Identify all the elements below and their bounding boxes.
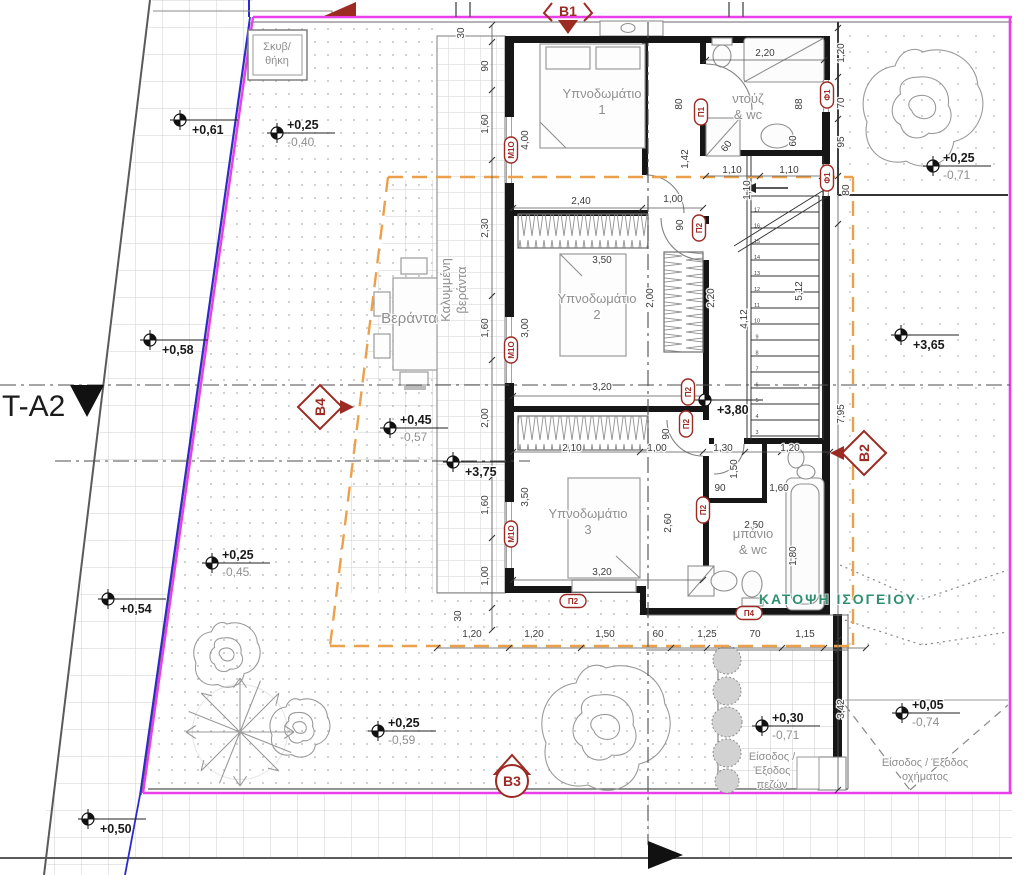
plan-title: ΚΑΤΟΨΗ ΙΣΟΓΕΙΟΥ: [759, 591, 917, 607]
dimension-label: 1,20: [780, 443, 800, 454]
north-triangle-icon: [324, 2, 356, 16]
opening-label: Φ1: [823, 172, 832, 184]
dimension-label: 1,60: [480, 318, 491, 338]
opening-label: Π1: [697, 106, 706, 117]
section-line-label: T-A2: [2, 390, 65, 423]
opening-label: Π2: [682, 418, 691, 429]
dimension-label: 88: [794, 98, 805, 110]
covered-veranda: Καλυμμένηβεράντα: [438, 258, 469, 322]
opening-label: Μ1Ο: [507, 141, 516, 158]
dimension-label: 90: [675, 219, 686, 231]
opening-marker-Π2: Π2: [693, 215, 706, 241]
marker-label: Β3: [503, 773, 521, 789]
stair-step-number: 6: [755, 382, 758, 388]
elevation-plus: +0,61: [192, 123, 224, 137]
dimension-label: 2,40: [571, 196, 591, 207]
stair-step-number: 11: [754, 303, 760, 309]
dimension-label: 3,20: [592, 567, 612, 578]
bedroom-3-text: Υπνοδωμάτιο: [548, 506, 627, 521]
opening-marker-Π2: Π2: [560, 595, 586, 608]
marker-label: Β4: [312, 398, 328, 416]
opening-label: Π4: [744, 609, 755, 618]
dimension-label: 30: [456, 27, 467, 39]
dimension-label: 3,00: [520, 318, 531, 338]
vehicle-entrance-text: Είσοδος / Έξοδος: [882, 757, 968, 769]
elevation-plus: +0,25: [287, 118, 319, 132]
drawing-canvas: 34567891011121314151617 30901,602,301,60…: [0, 0, 1024, 875]
dimension-label: 3,42: [836, 699, 847, 719]
dimension-label: 60: [652, 629, 664, 640]
opening-label: Π2: [568, 597, 579, 606]
covered-veranda-text: βεράντα: [454, 266, 469, 314]
bath-wc-text: μπάνιο: [733, 526, 773, 541]
elevation-minus: -0,57: [400, 430, 428, 444]
bedroom-3-text: 3: [584, 522, 591, 537]
dimension-label: 5,12: [794, 281, 805, 301]
stair-step-number: 3: [755, 430, 758, 436]
vehicle-entrance: Είσοδος / Έξοδοςοχήματος: [882, 757, 968, 783]
elevation-minus: -0,40: [287, 135, 315, 149]
stair-step-number: 10: [754, 319, 760, 325]
sidewalk-band-bottom: [46, 793, 1012, 858]
bath-wc-text: & wc: [739, 542, 768, 557]
veranda: Βεράντα: [381, 310, 437, 327]
stair-step-number: 13: [754, 271, 760, 277]
opening-marker-Π2: Π2: [680, 411, 693, 437]
elevation-plus: +0,45: [400, 413, 432, 427]
bedroom-1-text: Υπνοδωμάτιο: [562, 86, 641, 101]
dimension-label: 1,10: [722, 165, 742, 176]
dimension-label: 70: [836, 97, 847, 109]
stair-step-number: 16: [754, 223, 760, 229]
dimension-label: 1,25: [697, 629, 717, 640]
elevation-minus: -0,74: [912, 715, 940, 729]
bedroom-2-text: Υπνοδωμάτιο: [557, 291, 636, 306]
dimension-label: 60: [788, 135, 799, 147]
stair-step-number: 4: [755, 414, 758, 420]
dimension-label: 1,30: [713, 443, 733, 454]
opening-label: Μ1Ο: [507, 341, 516, 358]
benchmark-cross: [892, 703, 912, 723]
bath-wc: μπάνιο& wc: [733, 526, 773, 557]
dimension-label: 90: [661, 428, 672, 440]
dimension-label: 2,20: [706, 288, 717, 308]
veranda-text: Βεράντα: [381, 310, 437, 327]
stair-step-number: 12: [754, 287, 760, 293]
opening-marker-Π2: Π2: [697, 497, 710, 523]
elevation-plus: +3,65: [913, 338, 945, 352]
section-marker-Β1: Β1: [544, 3, 592, 34]
dimension-label: 1,00: [647, 443, 667, 454]
dimension-label: 1,50: [729, 459, 740, 479]
dimension-label: 1,10: [742, 180, 753, 200]
dimension-label: 1,00: [480, 566, 491, 586]
dimension-label: 7,95: [836, 404, 847, 424]
elevation-minus: -0,59: [388, 733, 416, 747]
stair-step-number: 17: [754, 207, 760, 213]
dimension-label: 1,60: [769, 483, 789, 494]
stair-step-number: 8: [755, 351, 758, 357]
pedestrian-entrance-text: Είσοδος /: [749, 751, 796, 763]
opening-label: Π2: [695, 222, 704, 233]
dimension-label: 30: [453, 610, 464, 622]
opening-marker-Φ1: Φ1: [821, 165, 834, 191]
elevation-plus: +0,25: [943, 151, 975, 165]
dimension-label: 1,20: [836, 43, 847, 63]
dimension-label: 70: [749, 629, 761, 640]
right-yard-lower: [841, 498, 1010, 655]
elevation-plus: +0,54: [120, 602, 152, 616]
elevation-plus: +0,25: [222, 548, 254, 562]
dimension-label: 80: [674, 98, 685, 110]
dimension-label: 1,00: [663, 194, 683, 205]
bedroom-2-text: 2: [593, 307, 600, 322]
dimension-label: 4,12: [739, 309, 750, 329]
marker-label: Β1: [559, 3, 577, 19]
stair-step-number: 9: [755, 335, 758, 341]
dimension-label: 1,60: [480, 495, 491, 515]
elevation-plus: +0,30: [772, 711, 804, 725]
elevation-plus: +3,75: [465, 465, 497, 479]
dimension-label: 90: [714, 483, 726, 494]
opening-label: Π2: [699, 504, 708, 515]
opening-marker-Π1: Π1: [695, 99, 708, 125]
elevation-plus: +0,58: [162, 343, 194, 357]
elevation-plus: +0,05: [912, 698, 944, 712]
dimension-label: 3,50: [520, 487, 531, 507]
garden-top-right: [841, 22, 1010, 195]
dimension-label: 1,15: [795, 629, 815, 640]
elevation-plus: +0,50: [100, 822, 132, 836]
dimension-label: 95: [836, 136, 847, 148]
elevation-benchmark-icon: +0,05-0,74: [892, 698, 960, 729]
elevation-minus: -0,71: [943, 168, 971, 182]
section-arrow-ta2: [70, 385, 104, 417]
dimension-label: 2,20: [755, 48, 775, 59]
stair-numbers: 34567891011121314151617: [754, 207, 760, 436]
elevation-plus: +0,25: [388, 716, 420, 730]
stair-step-number: 14: [754, 255, 760, 261]
pedestrian-entrance-text: πεζών: [757, 779, 788, 791]
opening-marker-Μ1Ο: Μ1Ο: [505, 337, 518, 363]
stair-step-number: 15: [754, 239, 760, 245]
marker-arrow: [830, 446, 844, 460]
dimension-label: 3,50: [592, 255, 612, 266]
elevation-plus: +3,80: [717, 403, 749, 417]
opening-marker-Μ1Ο: Μ1Ο: [505, 521, 518, 547]
opening-label: Μ1Ο: [507, 525, 516, 542]
opening-marker-Π2: Π2: [682, 379, 695, 405]
storage-text: θήκη: [265, 55, 289, 67]
opening-marker-Π4: Π4: [736, 607, 762, 620]
shower-wc: ντούζ& wc: [732, 91, 764, 122]
shower-wc-text: & wc: [734, 107, 763, 122]
dimension-label: 1,20: [462, 629, 482, 640]
dimension-label: 2,00: [645, 288, 656, 308]
bedroom-1-text: 1: [598, 102, 605, 117]
marker-arrow: [558, 20, 578, 34]
dimension-label: 1,20: [524, 629, 544, 640]
palm-tree-icon: [186, 678, 294, 786]
storage-text: Σκυβ/: [263, 41, 292, 53]
opening-label: Φ1: [823, 89, 832, 101]
shower-wc-text: ντούζ: [732, 91, 764, 106]
elevation-minus: -0,45: [222, 565, 250, 579]
dimension-label: 80: [841, 184, 852, 196]
opening-marker-Φ1: Φ1: [821, 82, 834, 108]
dimension-label: 1,80: [788, 546, 799, 566]
dimension-label: 2,60: [663, 513, 674, 533]
floor-plan-svg: 34567891011121314151617 30901,602,301,60…: [0, 0, 1024, 875]
marker-label: Β2: [856, 444, 872, 462]
opening-label: Π2: [684, 386, 693, 397]
elevation-minus: -0,71: [772, 728, 800, 742]
vehicle-entrance-text: οχήματος: [902, 771, 948, 783]
covered-veranda-text: Καλυμμένη: [438, 258, 453, 322]
pedestrian-entrance-text: Έξοδος: [753, 765, 791, 777]
stair-step-number: 7: [755, 366, 758, 372]
dimension-label: 2,00: [480, 408, 491, 428]
dimension-label: 1,10: [779, 165, 799, 176]
opening-marker-Μ1Ο: Μ1Ο: [505, 137, 518, 163]
dimension-label: 4,00: [520, 130, 531, 150]
dimension-label: 1,42: [680, 149, 691, 169]
dimension-label: 2,30: [480, 218, 491, 238]
dimension-label: 1,60: [480, 114, 491, 134]
dimension-label: 90: [480, 60, 491, 72]
stair-step-number: 5: [755, 398, 758, 404]
dimension-label: 2,10: [562, 443, 582, 454]
dimension-label: 1,50: [595, 629, 615, 640]
dimension-label: 3,20: [592, 382, 612, 393]
